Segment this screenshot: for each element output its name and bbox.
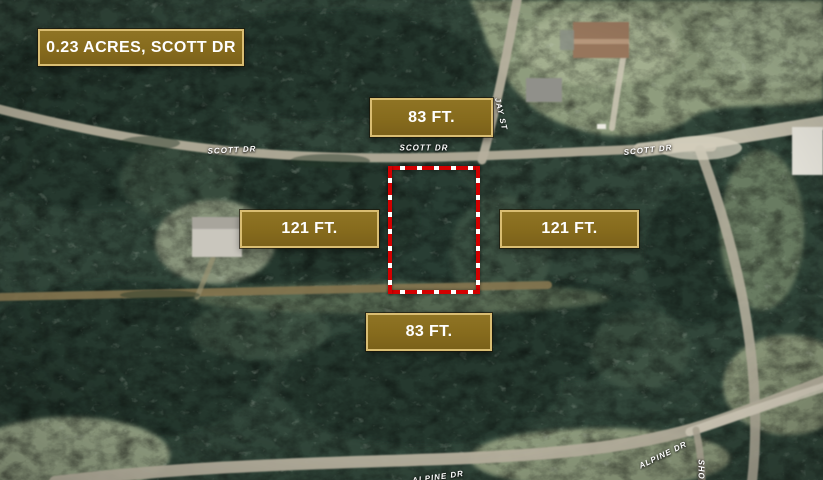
dimension-left-label: 121 FT.: [281, 220, 337, 238]
dimension-badge-top: 83 FT.: [370, 98, 493, 137]
street-label-short-partial: SHOR: [697, 459, 706, 480]
lot-boundary: [388, 166, 480, 294]
acreage-badge: 0.23 ACRES, SCOTT DR: [38, 29, 244, 66]
dimension-badge-right: 121 FT.: [500, 210, 639, 248]
lot-boundary-left: [388, 166, 392, 294]
dimension-top-label: 83 FT.: [408, 109, 455, 127]
dimension-bottom-label: 83 FT.: [406, 323, 453, 341]
acreage-badge-label: 0.23 ACRES, SCOTT DR: [46, 39, 236, 57]
listing-map: SCOTT DR SCOTT DR SCOTT DR JAY ST ALPINE…: [0, 0, 823, 480]
lot-boundary-top: [388, 166, 480, 170]
dimension-badge-left: 121 FT.: [240, 210, 379, 248]
dimension-badge-bottom: 83 FT.: [366, 313, 492, 351]
street-label-scott-dr-center: SCOTT DR: [400, 144, 449, 153]
lot-boundary-right: [476, 166, 480, 294]
dimension-right-label: 121 FT.: [541, 220, 597, 238]
lot-boundary-bottom: [388, 290, 480, 294]
